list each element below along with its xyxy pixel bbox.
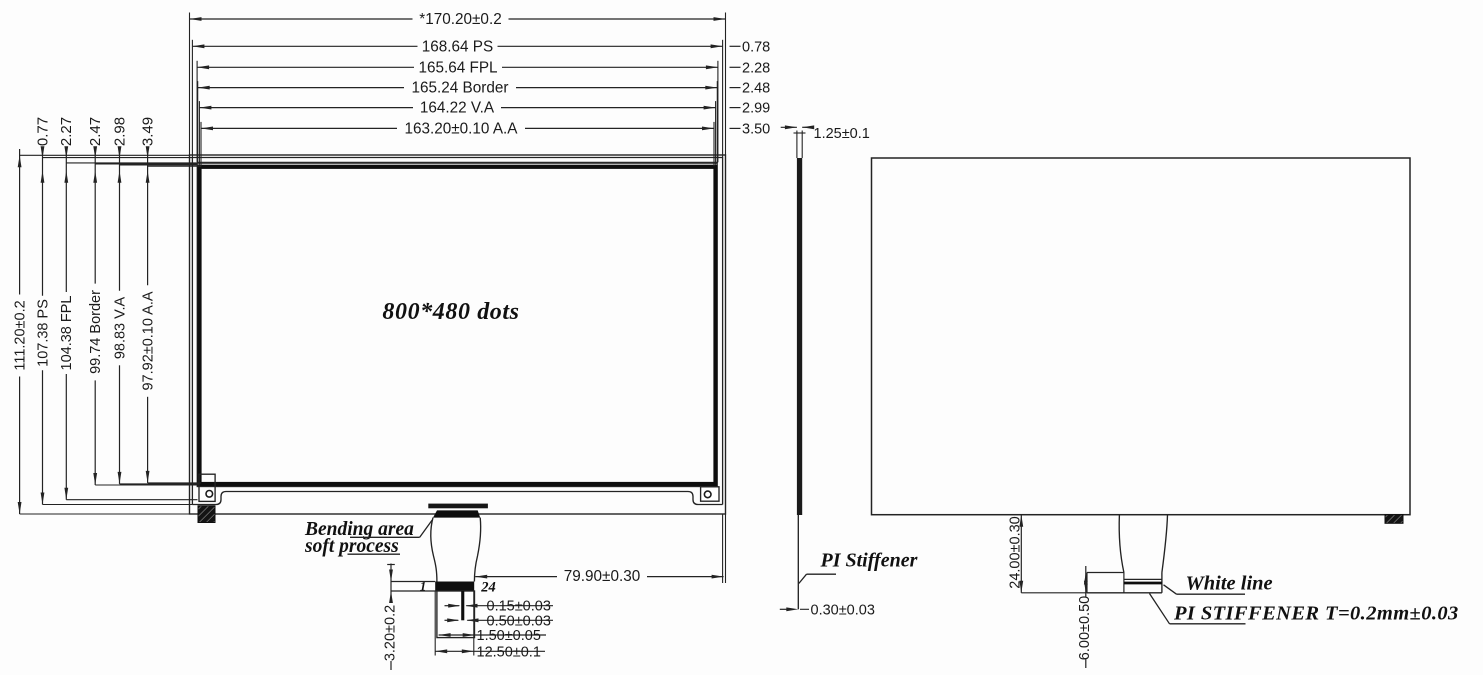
svg-text:PI STIFFENER T=0.2mm±0.03: PI STIFFENER T=0.2mm±0.03 <box>1173 603 1459 625</box>
svg-text:1.50±0.05: 1.50±0.05 <box>477 628 541 644</box>
svg-text:2.47: 2.47 <box>87 117 104 146</box>
svg-text:PI Stiffener: PI Stiffener <box>820 550 918 572</box>
svg-text:164.22 V.A: 164.22 V.A <box>420 100 495 117</box>
svg-text:2.99: 2.99 <box>742 101 770 117</box>
svg-text:24: 24 <box>480 580 496 596</box>
svg-text:107.38 PS: 107.38 PS <box>35 299 51 367</box>
svg-text:0.15±0.03: 0.15±0.03 <box>487 599 551 615</box>
svg-text:0.30±0.03: 0.30±0.03 <box>811 603 875 619</box>
svg-text:99.74 Border: 99.74 Border <box>88 290 104 374</box>
svg-text:*170.20±0.2: *170.20±0.2 <box>419 11 501 28</box>
svg-text:0.77: 0.77 <box>34 117 51 146</box>
svg-text:0.78: 0.78 <box>742 39 770 55</box>
svg-text:24.00±0.30: 24.00±0.30 <box>1007 516 1023 588</box>
svg-text:0.50±0.03: 0.50±0.03 <box>487 613 551 629</box>
svg-text:165.64 FPL: 165.64 FPL <box>418 59 497 76</box>
svg-text:168.64 PS: 168.64 PS <box>422 38 493 55</box>
svg-text:White line: White line <box>1186 573 1273 595</box>
svg-text:1.25±0.1: 1.25±0.1 <box>814 126 870 142</box>
svg-text:165.24 Border: 165.24 Border <box>412 80 509 97</box>
svg-text:12.50±0.1: 12.50±0.1 <box>477 644 541 660</box>
svg-text:97.92±0.10 A.A: 97.92±0.10 A.A <box>141 291 157 390</box>
svg-text:79.90±0.30: 79.90±0.30 <box>564 568 640 585</box>
svg-text:104.38 FPL: 104.38 FPL <box>59 296 75 371</box>
svg-text:2.27: 2.27 <box>58 117 75 146</box>
svg-text:6.00±0.50: 6.00±0.50 <box>1077 596 1093 660</box>
svg-text:98.83 V.A: 98.83 V.A <box>112 296 128 359</box>
svg-text:2.28: 2.28 <box>742 60 770 76</box>
svg-text:3.50: 3.50 <box>742 121 770 137</box>
svg-text:3.20±0.2: 3.20±0.2 <box>383 605 399 661</box>
svg-text:2.48: 2.48 <box>742 81 770 97</box>
svg-text:800*480 dots: 800*480 dots <box>382 299 519 325</box>
svg-text:3.49: 3.49 <box>140 117 157 146</box>
svg-text:2.98: 2.98 <box>111 117 128 146</box>
svg-text:111.20±0.2: 111.20±0.2 <box>13 300 29 370</box>
svg-text:163.20±0.10 A.A: 163.20±0.10 A.A <box>404 120 518 137</box>
